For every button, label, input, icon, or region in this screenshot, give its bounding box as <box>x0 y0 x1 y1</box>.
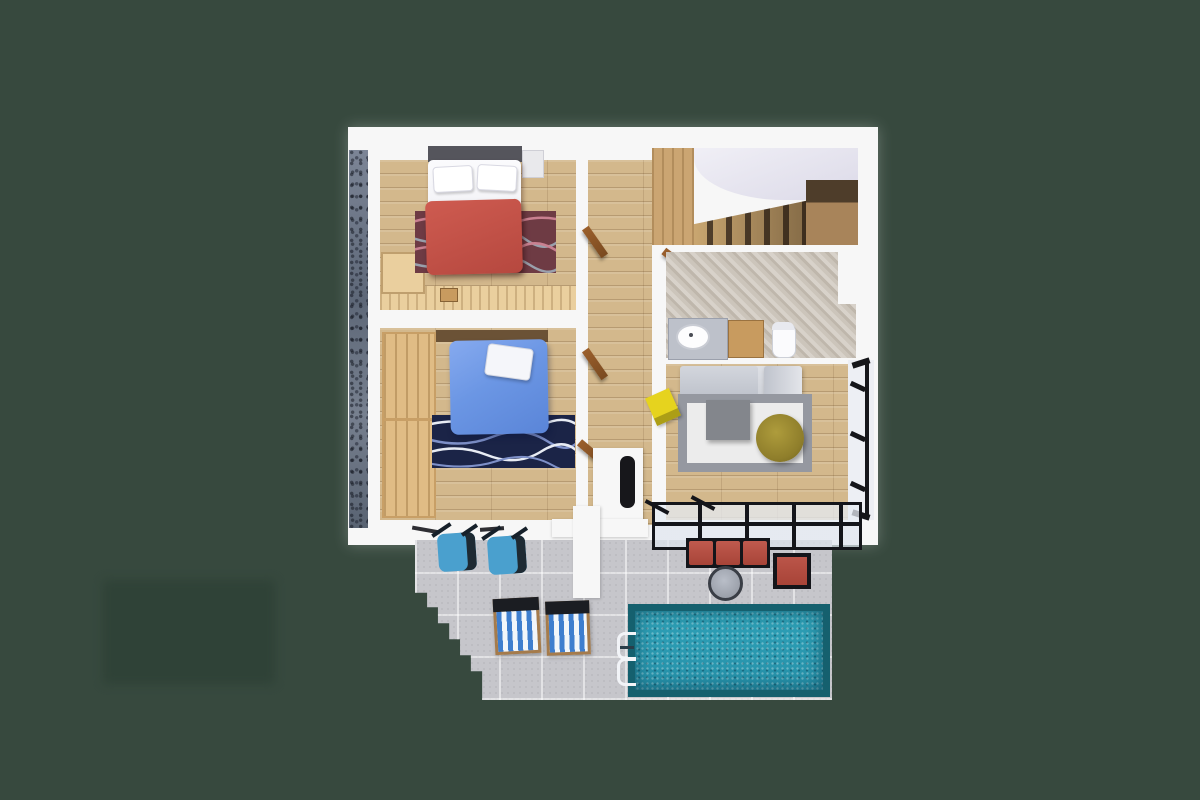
fireplace-wall <box>593 448 643 525</box>
coffee-table <box>706 400 750 440</box>
stone-clad-exterior-wall <box>349 150 368 528</box>
ground-shadow-patch <box>103 580 275 684</box>
toilet-tank <box>772 322 794 330</box>
blue-patio-chair <box>437 532 478 573</box>
pillow <box>484 343 534 381</box>
bedroom-red-nightstand <box>522 150 544 178</box>
floor-plan-render <box>0 0 1200 800</box>
sink-drain <box>689 333 693 337</box>
sofa-cushion <box>689 541 713 565</box>
lounger-headrest <box>493 597 540 612</box>
red-armchair <box>773 553 811 589</box>
olive-pouf <box>756 414 804 462</box>
terrace-wall-vertical <box>573 506 600 598</box>
stairwell-wood-panel <box>652 148 694 245</box>
pool-ladder-step <box>620 646 634 649</box>
sofa-cushion <box>743 541 767 565</box>
pillow <box>476 164 517 192</box>
armchair-cushion <box>777 557 807 585</box>
sink <box>676 324 710 350</box>
wardrobe <box>382 332 436 518</box>
lounger-headrest <box>545 600 589 615</box>
bathroom-niche <box>838 252 858 304</box>
round-side-table <box>708 566 743 601</box>
bedroom-red-stool <box>440 288 458 302</box>
red-outdoor-sofa <box>686 538 770 568</box>
pool-water <box>635 611 823 690</box>
fireplace-insert <box>620 456 635 508</box>
blue-patio-chair <box>487 535 528 576</box>
striped-deck-lounger <box>545 600 591 656</box>
pillow <box>432 165 473 193</box>
wardrobe-shelf-line <box>382 418 432 421</box>
swimming-pool <box>628 604 830 697</box>
window-frame <box>865 362 869 518</box>
terrace-wall-horizontal <box>552 519 648 537</box>
sofa-cushion <box>716 541 740 565</box>
staircase-upper-block <box>806 180 858 245</box>
bathroom-cabinet <box>728 320 764 358</box>
striped-deck-lounger <box>493 597 542 655</box>
red-blanket <box>425 199 523 275</box>
pool-ladder-rail <box>617 658 636 686</box>
